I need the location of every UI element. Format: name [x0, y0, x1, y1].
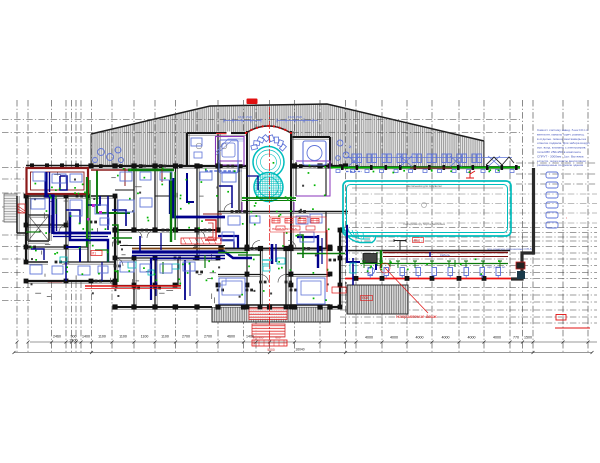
svg-text:1100: 1100: [98, 335, 106, 339]
svg-text:2400: 2400: [70, 339, 78, 343]
svg-text:770: 770: [513, 336, 519, 340]
svg-text:светильники для подсветки: светильники для подсветки: [406, 184, 442, 188]
svg-text:по периметру борта бассейна: по периметру борта бассейна: [403, 222, 445, 226]
svg-text:1520 1520: 1520 1520: [288, 115, 303, 119]
svg-text:размещенные по кровле здания: размещенные по кровле здания: [537, 163, 583, 167]
svg-text:Кабель: Кабель: [440, 253, 450, 257]
svg-text:800: 800: [275, 336, 280, 340]
svg-text:щит учёта эл.: щит учёта эл.: [487, 265, 506, 269]
svg-text:900 900: 900 900: [253, 336, 264, 340]
svg-text:2700: 2700: [204, 335, 212, 339]
svg-text:исп. возд. клапаны с электропр: исп. возд. клапаны с электроприв.: [537, 146, 586, 150]
svg-text:4000: 4000: [365, 336, 373, 340]
svg-text:1100: 1100: [141, 335, 149, 339]
svg-text:Самост. систему завед. б-на СЗ: Самост. систему завед. б-на СЗ п.п: [537, 128, 588, 132]
svg-text:4000: 4000: [390, 336, 398, 340]
svg-text:естеств. через шахты вентиляци: естеств. через шахты вентиляции: [537, 159, 586, 163]
svg-text:в отдельн. помещ. венткамеры н: в отдельн. помещ. венткамеры на: [537, 137, 586, 141]
svg-text:2460: 2460: [53, 335, 61, 339]
svg-text:1400: 1400: [82, 335, 90, 339]
svg-text:ПК ОП-5 ПК ОП-5: ПК ОП-5 ПК ОП-5: [272, 227, 297, 231]
svg-text:5000: 5000: [267, 348, 275, 352]
svg-text:Направление движ.: Направление движ.: [396, 314, 438, 319]
svg-text:ВЩ: ВЩ: [414, 239, 420, 243]
svg-text:16040: 16040: [295, 348, 304, 352]
svg-text:СПРУТ - 3000мм - 1шт. Вытяжка: СПРУТ - 3000мм - 1шт. Вытяжка: [537, 154, 584, 158]
svg-text:4000: 4000: [468, 336, 476, 340]
svg-text:4600: 4600: [227, 335, 235, 339]
svg-text:4000: 4000: [416, 336, 424, 340]
svg-text:1100: 1100: [119, 335, 127, 339]
svg-text:поз. огнетуш. порошковых ОП-5: поз. огнетуш. порошковых ОП-5: [487, 247, 532, 251]
svg-text:типа КВУ 250х250 в комплекте: типа КВУ 250х250 в комплекте: [537, 150, 581, 154]
svg-text:1500: 1500: [524, 336, 532, 340]
svg-text:отметке подвала. Для забора во: отметке подвала. Для забора воздух: [537, 141, 590, 145]
svg-text:1100: 1100: [161, 335, 169, 339]
svg-text:1520 1520: 1520 1520: [238, 115, 253, 119]
svg-text:Л1: Л1: [92, 252, 96, 256]
svg-text:вентилят. каналы горяч. размещ: вентилят. каналы горяч. размещ.: [537, 132, 585, 136]
svg-text:4000: 4000: [442, 336, 450, 340]
svg-text:2700: 2700: [182, 335, 190, 339]
svg-text:4000: 4000: [493, 336, 501, 340]
svg-text:Л08: Л08: [362, 296, 368, 300]
